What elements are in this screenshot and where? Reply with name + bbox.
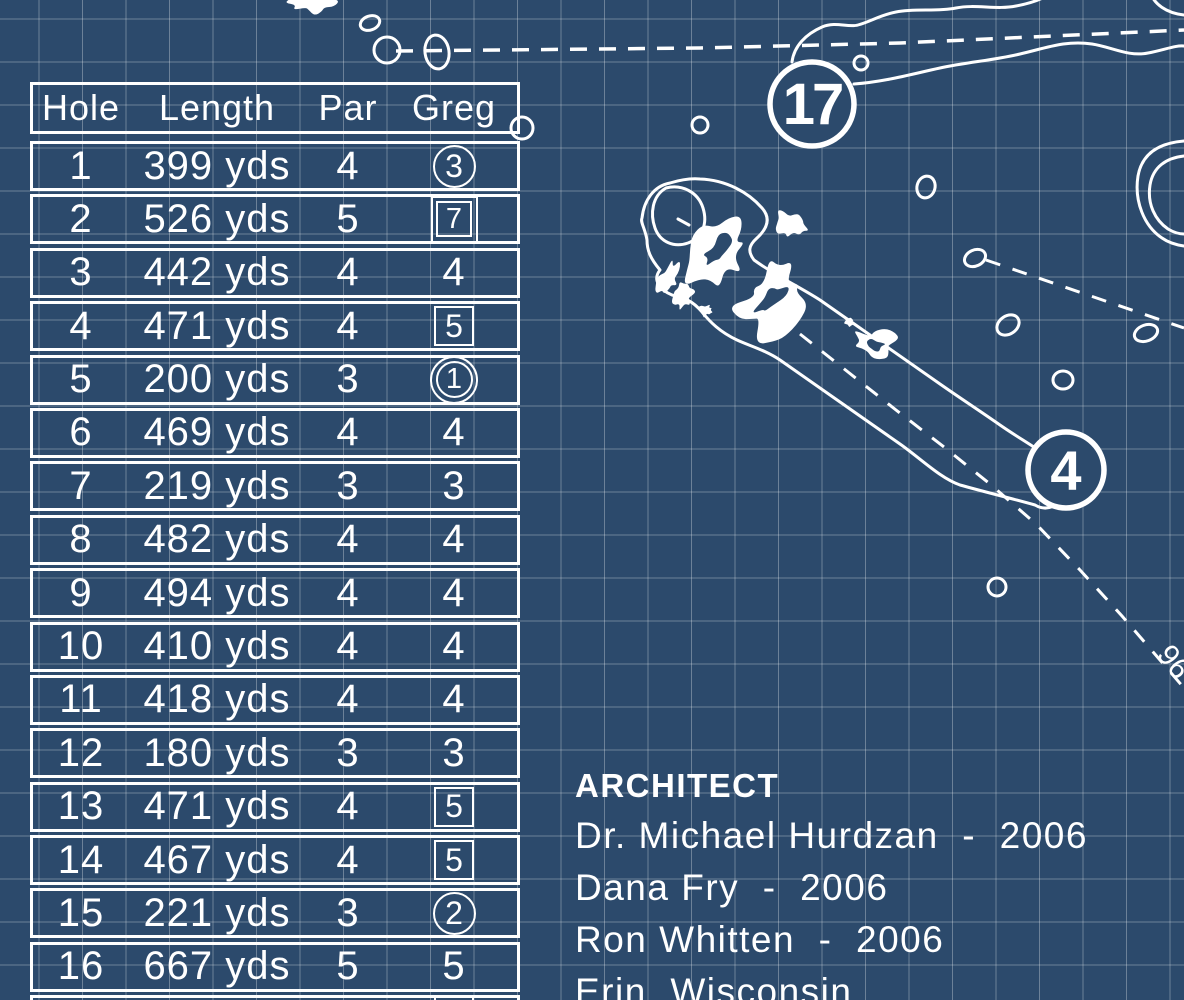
hole-length: 399 yds [129,144,305,188]
tee-circle [988,578,1006,596]
architect-heading: ARCHITECT [575,767,1088,805]
hole-length: 469 yds [129,411,305,455]
hole-number: 8 [33,518,129,562]
scorecard-row: 9494 yds44 [30,568,520,618]
scorecard-row: 2526 yds57 [30,194,520,244]
score-mark-square: 5 [434,840,474,880]
greg-score: 5 [391,838,517,882]
score-mark-inner: 1 [436,361,473,398]
scorecard-row-partial [30,995,520,1000]
hole-4-pin-mark [678,219,689,225]
score-mark-inner: 7 [436,201,472,237]
scorecard-row: 5200 yds31 [30,355,520,405]
hole-number: 1 [33,144,129,188]
scorecard-row: 6469 yds44 [30,408,520,458]
hole-length: 418 yds [129,678,305,722]
hole-length: 200 yds [129,358,305,402]
tee-circle [692,117,708,133]
scorecard-row: 15221 yds32 [30,888,520,938]
score-mark-square [434,996,474,1000]
greg-score: 5 [391,945,517,989]
architect-line: Ron Whitten - 2006 [575,914,1088,966]
hole-par: 4 [305,785,391,829]
hole-par: 4 [305,251,391,295]
rotated-text-fragment: 96 [1150,639,1184,686]
hole-number: 15 [33,891,129,935]
scorecard-row: 7219 yds33 [30,461,520,511]
tee-ellipse [962,246,989,270]
tee-circle [854,56,868,70]
scorecard-row: 4471 yds45 [30,301,520,351]
scorecard-row: 16667 yds55 [30,942,520,992]
architect-line: Dana Fry - 2006 [575,862,1088,914]
hole-number: 13 [33,785,129,829]
hole-length: 442 yds [129,251,305,295]
hole-number: 3 [33,251,129,295]
greg-score: 5 [391,304,517,348]
hole-number: 7 [33,464,129,508]
architect-line: Dr. Michael Hurdzan - 2006 [575,810,1088,862]
edge-green-outline [1137,141,1184,246]
hole-4-number: 4 [1050,439,1081,502]
blueprint-poster: 17 4 96 Hole Length Par Greg 1399 yds432… [0,0,1184,1000]
header-par: Par [305,85,391,131]
hole-length: 467 yds [129,838,305,882]
hole-par: 4 [305,625,391,669]
hole-length: 180 yds [129,731,305,775]
hole-number: 4 [33,304,129,348]
greg-score: 4 [391,251,517,295]
greg-score: 3 [391,144,517,188]
hole-number: 10 [33,625,129,669]
scorecard-row: 3442 yds44 [30,248,520,298]
hole-number: 12 [33,731,129,775]
scorecard-row: 8482 yds44 [30,515,520,565]
hole-length: 471 yds [129,785,305,829]
hole-par: 3 [305,731,391,775]
tee-ellipse [1053,371,1073,389]
bunker [776,210,808,236]
scorecard-row: 12180 yds33 [30,728,520,778]
scorecard-table: Hole Length Par Greg 1399 yds432526 yds5… [30,82,520,1000]
hole-17-marker: 17 [770,62,854,146]
bunker [672,282,695,309]
hole-4-dashed-line [800,334,1184,688]
hole-length: 667 yds [129,945,305,989]
score-mark-circle: 3 [433,145,476,188]
hole-par: 3 [305,464,391,508]
hole-number: 6 [33,411,129,455]
scorecard-row: 13471 yds45 [30,782,520,832]
hole-par: 5 [305,197,391,241]
hole-par: 4 [305,571,391,615]
greg-score: 3 [391,731,517,775]
hole-number: 11 [33,678,129,722]
hole-number: 9 [33,571,129,615]
greg-score: 4 [391,411,517,455]
hole-17-dashed-line [396,30,1184,51]
scorecard-row: 1399 yds43 [30,141,520,191]
scorecard-header: Hole Length Par Greg [30,82,520,134]
hole-par: 4 [305,838,391,882]
greg-score: 3 [391,464,517,508]
hole-length: 410 yds [129,625,305,669]
greg-score: 4 [391,625,517,669]
tee-ellipse [1132,321,1160,344]
score-mark-double-circle: 1 [430,356,478,404]
hole-length: 494 yds [129,571,305,615]
bunker [655,261,680,293]
score-mark-square: 5 [434,787,474,827]
hole-17-number: 17 [783,72,842,137]
hole-4-marker: 4 [1028,432,1104,508]
hole-length: 526 yds [129,197,305,241]
score-mark-double-square: 7 [431,196,478,243]
greg-score: 7 [391,197,517,241]
hole-par: 4 [305,144,391,188]
hole-length: 482 yds [129,518,305,562]
hole-length: 221 yds [129,891,305,935]
greg-score: 2 [391,891,517,935]
hole-par: 3 [305,891,391,935]
hole-number: 14 [33,838,129,882]
hole-length: 471 yds [129,304,305,348]
tee-ellipse [993,311,1023,340]
bunker [287,0,338,15]
greg-score: 4 [391,678,517,722]
architect-line: Erin, Wisconsin [575,966,1088,1000]
hole-length: 219 yds [129,464,305,508]
architect-block: ARCHITECT Dr. Michael Hurdzan - 2006 Dan… [575,767,1088,1000]
hole-number: 5 [33,358,129,402]
score-mark-square: 5 [434,306,474,346]
hole-par: 4 [305,518,391,562]
greg-score: 4 [391,518,517,562]
hole-number: 2 [33,197,129,241]
header-hole: Hole [33,85,129,131]
greg-score: 5 [391,785,517,829]
hole-number: 16 [33,945,129,989]
tee-ellipse [358,13,382,33]
scorecard-row: 14467 yds45 [30,835,520,885]
header-length: Length [129,85,305,131]
header-greg: Greg [391,85,517,131]
scorecard-rows: 1399 yds432526 yds573442 yds444471 yds45… [30,141,520,1000]
scorecard-row: 11418 yds44 [30,675,520,725]
hole-par: 5 [305,945,391,989]
hole-par: 3 [305,358,391,402]
score-mark-circle: 2 [433,892,476,935]
architect-lines: Dr. Michael Hurdzan - 2006 Dana Fry - 20… [575,810,1088,1000]
hole-17-fairway-outline [792,0,1184,84]
greg-score: 4 [391,571,517,615]
greg-score: 1 [391,358,517,402]
hole-par: 4 [305,411,391,455]
hole-par: 4 [305,678,391,722]
scorecard-row: 10410 yds44 [30,622,520,672]
tee-ellipse [914,174,937,200]
hole-par: 4 [305,304,391,348]
